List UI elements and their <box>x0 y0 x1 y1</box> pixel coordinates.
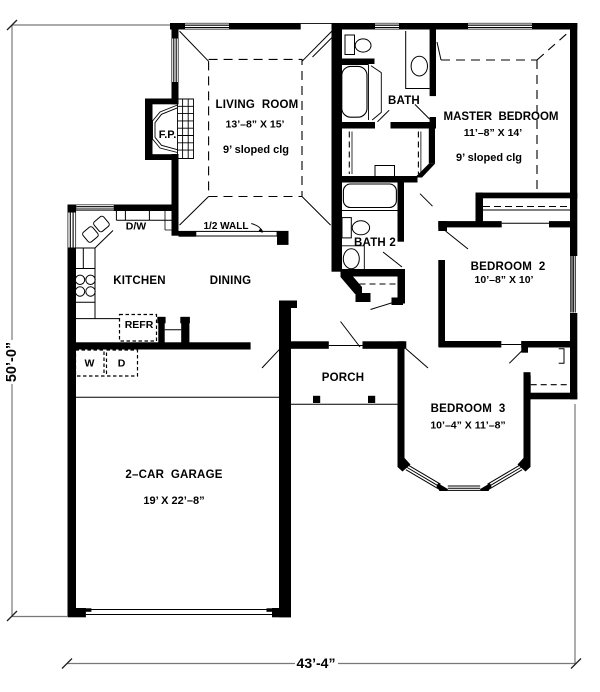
svg-text:BEDROOM 3: BEDROOM 3 <box>431 403 506 415</box>
svg-text:F.P.: F.P. <box>159 129 177 141</box>
svg-text:D: D <box>118 358 126 370</box>
svg-text:2–CAR GARAGE: 2–CAR GARAGE <box>125 469 222 481</box>
svg-text:REFR: REFR <box>125 319 154 331</box>
svg-text:9’ sloped clg: 9’ sloped clg <box>456 152 522 164</box>
svg-text:19’ X 22’–8”: 19’ X 22’–8” <box>143 495 204 507</box>
svg-text:10’–4” X 11’–8”: 10’–4” X 11’–8” <box>430 420 505 432</box>
svg-text:KITCHEN: KITCHEN <box>113 275 166 287</box>
svg-text:BATH: BATH <box>388 95 420 107</box>
svg-text:50’-0”: 50’-0” <box>4 342 20 382</box>
svg-text:BATH 2: BATH 2 <box>354 237 396 249</box>
svg-text:LIVING ROOM: LIVING ROOM <box>216 99 299 111</box>
svg-text:9’ sloped clg: 9’ sloped clg <box>223 144 289 156</box>
svg-text:PORCH: PORCH <box>322 372 365 384</box>
svg-text:10’–8” X 10’: 10’–8” X 10’ <box>475 274 534 286</box>
svg-text:1/2 WALL: 1/2 WALL <box>203 221 248 232</box>
svg-text:D/W: D/W <box>126 221 147 233</box>
svg-text:MASTER BEDROOM: MASTER BEDROOM <box>444 111 559 123</box>
svg-text:13’–8” X 15’: 13’–8” X 15’ <box>226 119 285 131</box>
svg-text:BEDROOM 2: BEDROOM 2 <box>471 261 546 273</box>
svg-text:DINING: DINING <box>210 275 251 287</box>
svg-text:43’-4”: 43’-4” <box>297 655 336 671</box>
svg-text:W: W <box>85 358 95 370</box>
svg-text:11’–8” X 14’: 11’–8” X 14’ <box>464 127 522 139</box>
